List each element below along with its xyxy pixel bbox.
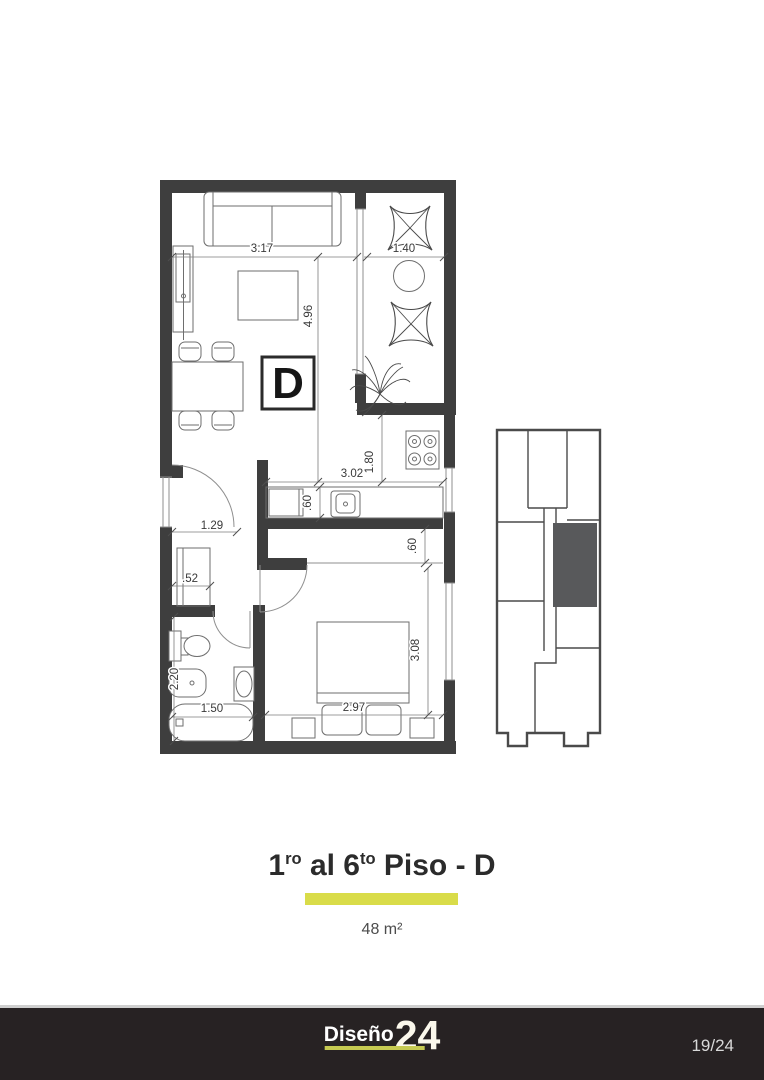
coffee-table bbox=[238, 271, 298, 320]
dim-kitchen-width: 3.02 bbox=[341, 468, 363, 480]
fridge bbox=[269, 489, 303, 516]
dining-set bbox=[172, 342, 243, 430]
brand-logo-underline bbox=[325, 1046, 425, 1050]
dim-closet-depth: .52 bbox=[182, 573, 198, 585]
nightstand bbox=[292, 718, 315, 738]
bedroom-door-arc bbox=[260, 565, 307, 612]
dim-balcony-width: 1.40 bbox=[393, 243, 415, 255]
title-part: Piso - D bbox=[376, 849, 496, 882]
accent-underline-bar bbox=[305, 893, 458, 905]
wall-partition-stub-bottom bbox=[355, 374, 366, 403]
brand-logo: Diseño 24 bbox=[324, 1020, 441, 1052]
dining-chair bbox=[179, 411, 201, 430]
wall-bath-bedroom bbox=[253, 605, 265, 741]
key-plan bbox=[497, 430, 600, 746]
page-title: 1ro al 6to Piso - D bbox=[0, 851, 764, 881]
pillow bbox=[366, 705, 401, 735]
wall-bottom bbox=[160, 741, 456, 754]
sofa bbox=[204, 192, 341, 246]
key-plan-highlighted-unit bbox=[553, 523, 597, 607]
title-superscript: ro bbox=[285, 850, 302, 868]
title-part: 1 bbox=[268, 849, 285, 882]
stove bbox=[406, 431, 439, 469]
wall-entry-stub bbox=[160, 465, 183, 478]
dim-bedroom-width: 2.97 bbox=[343, 702, 365, 714]
dim-bath-width: 1.50 bbox=[201, 703, 223, 715]
page: D bbox=[0, 0, 764, 1080]
dining-chair bbox=[179, 342, 201, 361]
wall-left-upper bbox=[160, 180, 172, 477]
floor-plan-svg: D bbox=[0, 0, 764, 1080]
wall-top bbox=[160, 180, 456, 193]
toilet bbox=[169, 631, 210, 661]
dining-chair bbox=[212, 411, 234, 430]
wall-balcony-right bbox=[444, 180, 456, 415]
dining-table bbox=[172, 362, 243, 411]
doors bbox=[172, 465, 443, 648]
area-label: 48 m² bbox=[0, 921, 764, 939]
wall-right-a bbox=[444, 415, 455, 468]
butterfly-chair bbox=[389, 302, 433, 346]
unit-label: D bbox=[272, 359, 304, 408]
wall-right-c bbox=[444, 680, 455, 742]
page-number: 19/24 bbox=[691, 1036, 734, 1056]
balcony-window bbox=[355, 209, 366, 374]
tv-unit bbox=[173, 246, 193, 340]
unit-label-box: D bbox=[262, 357, 314, 409]
dim-entry-width: 1.29 bbox=[201, 520, 223, 532]
bathroom-door-arc bbox=[213, 611, 250, 648]
wall-kitchen-bottom bbox=[268, 518, 443, 529]
wall-bedroom-jamb bbox=[268, 558, 307, 570]
balcony-round-table bbox=[394, 261, 425, 292]
title-superscript: to bbox=[360, 850, 376, 868]
living-room-furniture: D bbox=[172, 192, 341, 430]
title-part: al 6 bbox=[302, 849, 360, 882]
dim-bath-depth: 2.20 bbox=[169, 668, 181, 690]
bed bbox=[317, 622, 409, 735]
bedroom-window bbox=[444, 583, 455, 680]
dim-bedroom-depth: 3.08 bbox=[410, 639, 422, 661]
dim-passage-width: .60 bbox=[407, 538, 419, 554]
dining-chair bbox=[212, 342, 234, 361]
entry-door-frame bbox=[160, 477, 172, 527]
dim-kitchen-depth: 1.80 bbox=[364, 451, 376, 473]
dim-living-width: 3.17 bbox=[251, 243, 273, 255]
dim-counter-depth: .60 bbox=[302, 495, 314, 511]
washbasin bbox=[234, 667, 254, 701]
wall-bath-top bbox=[160, 605, 215, 617]
nightstand bbox=[410, 718, 434, 738]
wall-partition-stub-top bbox=[355, 193, 366, 209]
footer-bar: Diseño 24 19/24 bbox=[0, 1008, 764, 1080]
wall-right-b bbox=[444, 512, 455, 583]
kitchen-sink bbox=[331, 491, 360, 517]
dim-living-depth: 4.96 bbox=[303, 305, 315, 327]
kitchen-window bbox=[444, 468, 455, 512]
wall-balcony-bottom bbox=[357, 403, 456, 415]
